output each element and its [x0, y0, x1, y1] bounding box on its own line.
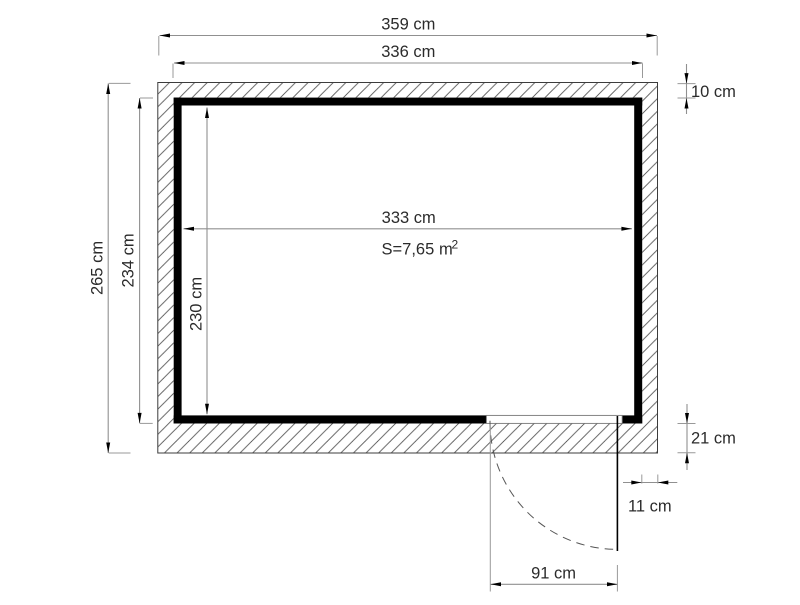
svg-text:359 cm: 359 cm — [381, 16, 435, 34]
svg-text:234 cm: 234 cm — [120, 233, 138, 287]
svg-text:230 cm: 230 cm — [188, 277, 206, 331]
svg-text:11 cm: 11 cm — [628, 498, 672, 516]
svg-text:S=7,65: S=7,65 — [382, 241, 435, 259]
svg-text:10 cm: 10 cm — [691, 83, 736, 101]
svg-text:21 cm: 21 cm — [691, 429, 736, 447]
svg-text:2: 2 — [452, 238, 459, 252]
svg-text:265 cm: 265 cm — [89, 241, 107, 295]
svg-text:333 cm: 333 cm — [382, 209, 436, 227]
svg-text:91 cm: 91 cm — [531, 565, 576, 583]
svg-text:336 cm: 336 cm — [381, 43, 435, 61]
